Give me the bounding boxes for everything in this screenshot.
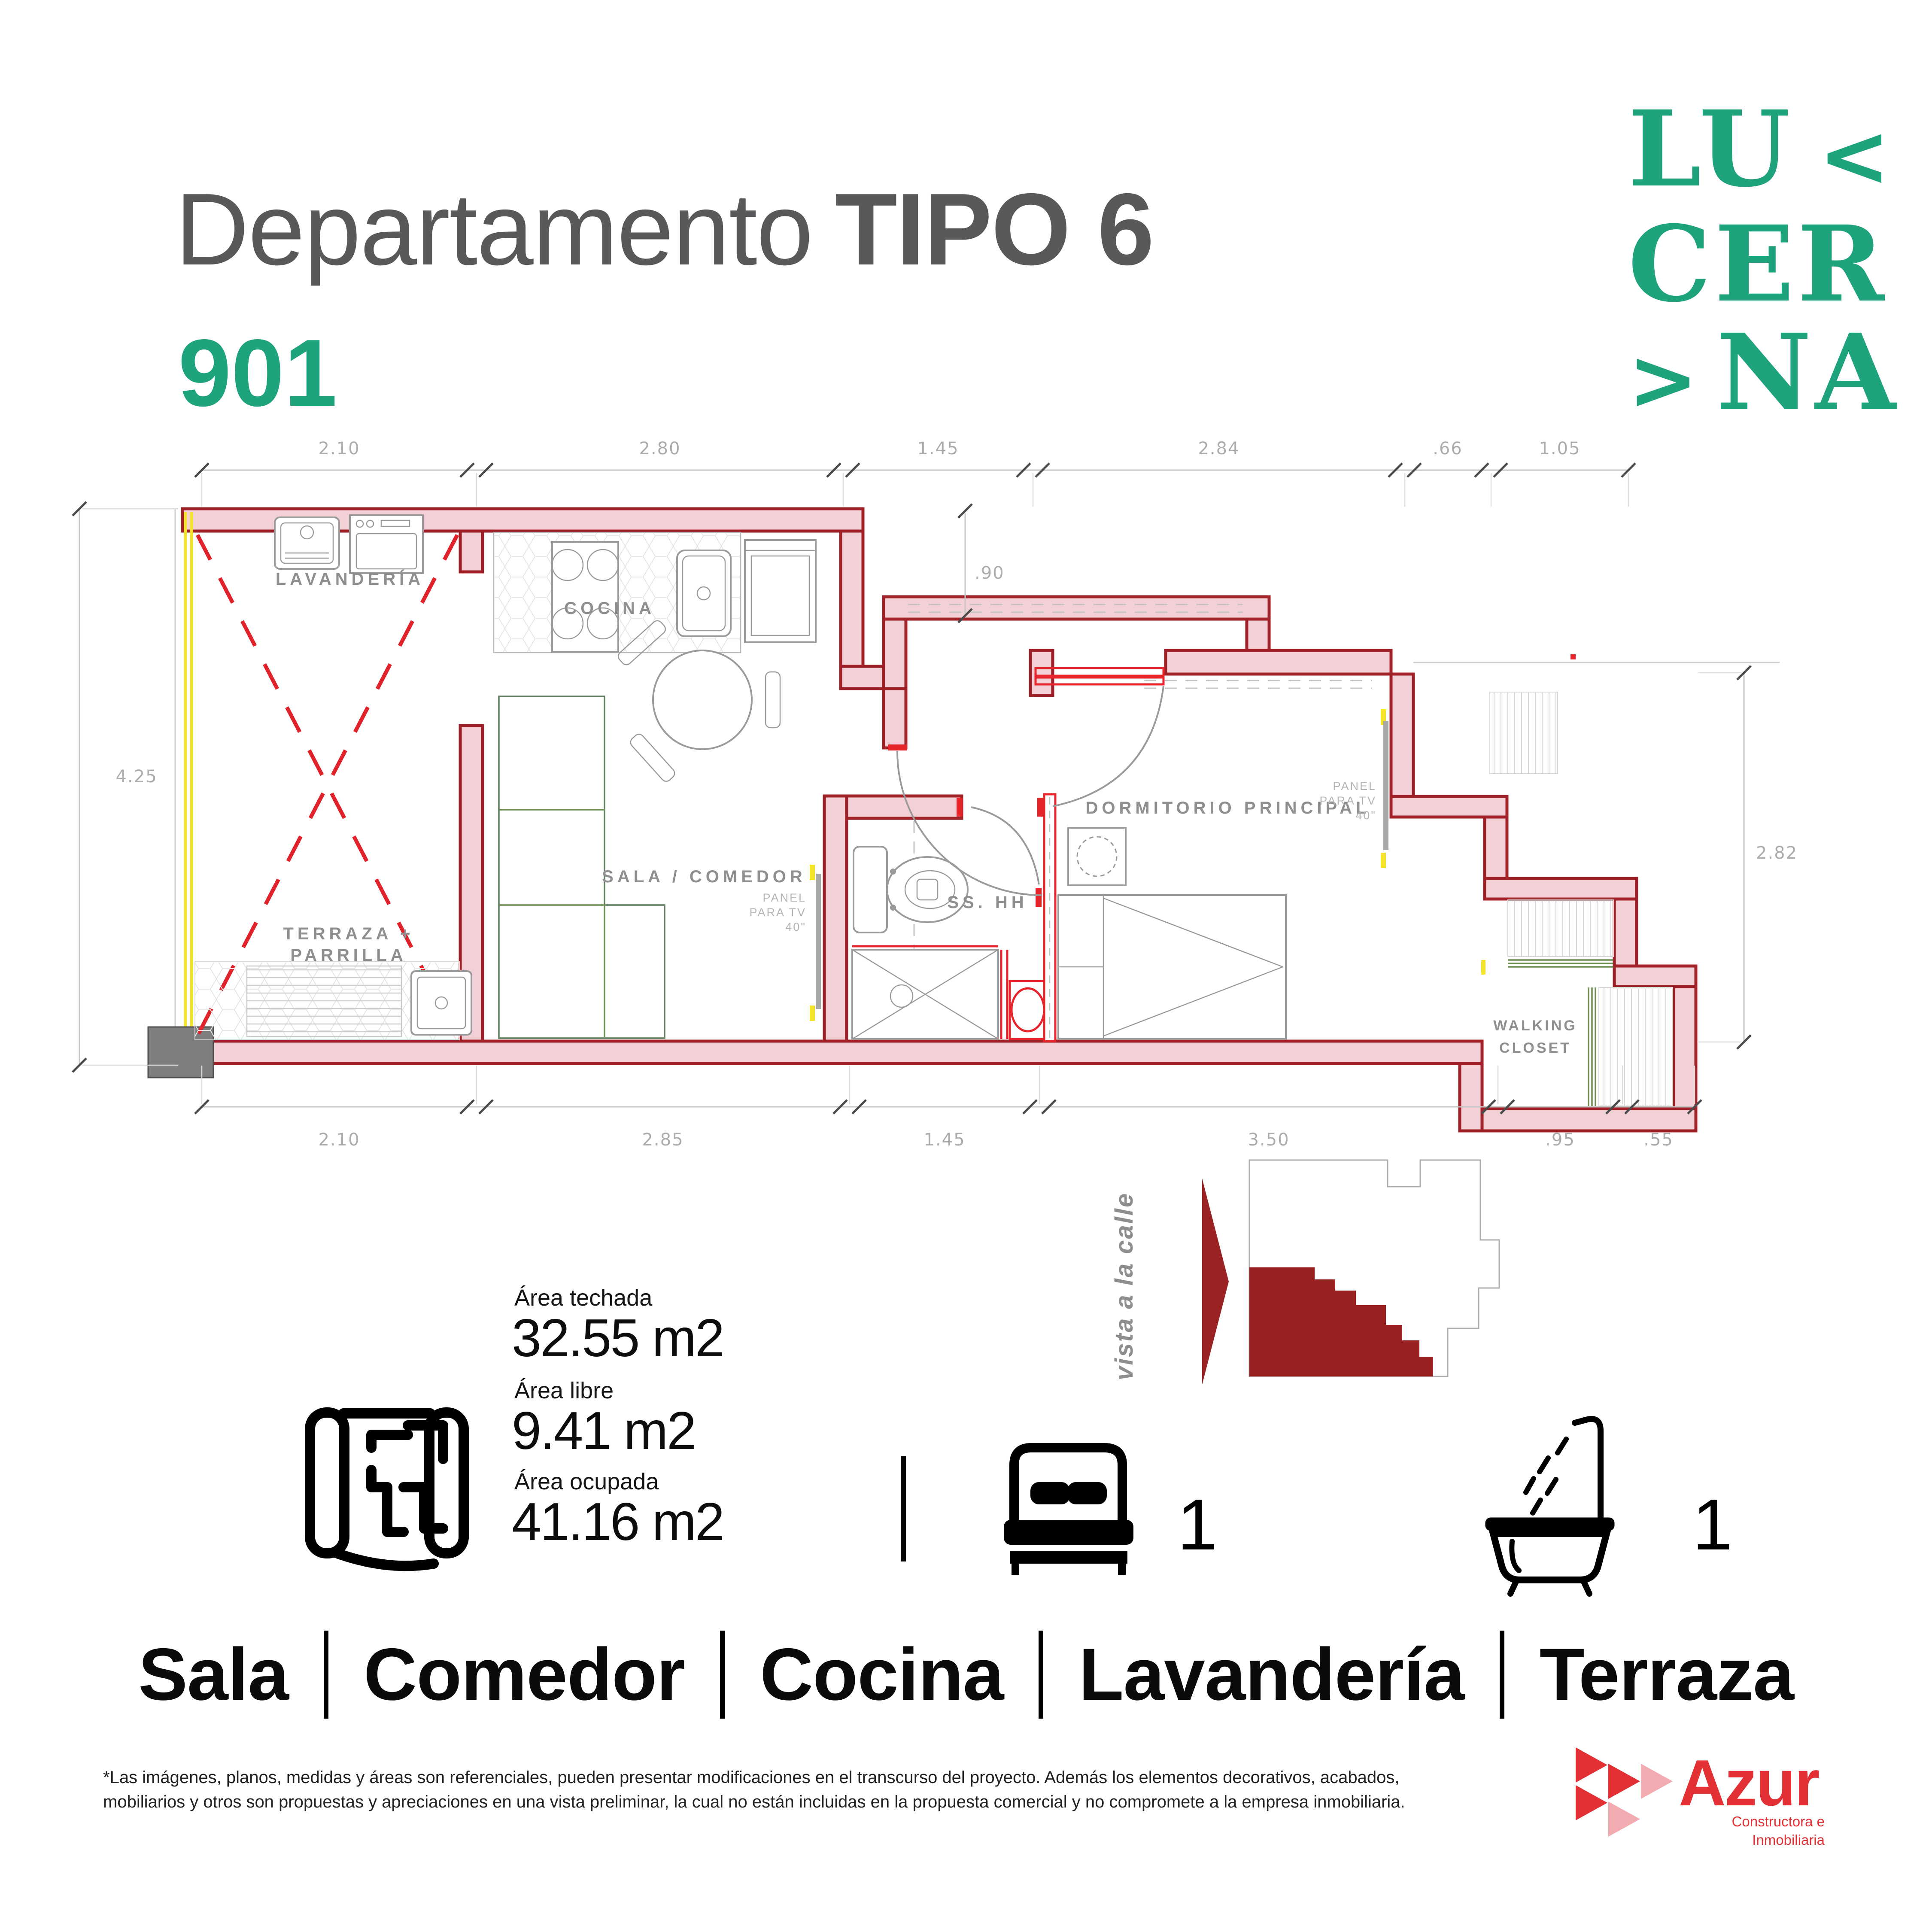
grill-icon [247,966,401,1036]
amenity-sala: Sala [138,1632,289,1717]
bathrooms-count: 1 [1692,1483,1732,1566]
title-regular: Departamento [175,173,812,286]
lucerna-text-lu: LU [1628,88,1793,210]
lucerna-line-1: LU< [1628,95,1899,210]
azur-tagline: Constructora e Inmobiliaria [1679,1813,1825,1850]
svg-text:2.10: 2.10 [318,439,360,459]
amenity-separator [324,1631,328,1719]
area-ocupada-value: 41.16 m2 [512,1492,723,1552]
amenity-separator [1500,1631,1504,1719]
feature-divider [901,1456,906,1561]
amenity-separator [720,1631,725,1719]
svg-text:4.25: 4.25 [115,767,157,787]
svg-text:.95: .95 [1545,1130,1575,1150]
svg-text:1.45: 1.45 [917,439,959,459]
street-view-arrow-icon [1202,1179,1229,1385]
svg-text:2.80: 2.80 [639,439,680,459]
svg-text:2.84: 2.84 [1198,439,1239,459]
kitchen-counter [494,532,816,653]
partition-wall [1044,794,1055,1041]
area-libre-label: Área libre [514,1377,614,1404]
bathroom [852,798,1045,1039]
bedroom [1058,828,1286,1039]
bathtub-icon [1485,1419,1614,1594]
amenities-row: Sala Comedor Cocina Lavandería Terraza [0,1629,1932,1719]
azur-logo: Azur [1679,1746,1819,1821]
tv-panel-sala [810,865,821,1021]
area-libre-value: 9.41 m2 [512,1400,695,1461]
disclaimer: *Las imágenes, planos, medidas y áreas s… [103,1765,1533,1814]
chevron-left-icon: < [1818,106,1890,206]
page-title: DepartamentoTIPO 6 [175,171,1153,288]
azur-triangles-icon [1576,1747,1673,1837]
svg-text:.66: .66 [1433,439,1463,459]
doors [888,654,1576,907]
svg-text:2.85: 2.85 [642,1130,683,1150]
stove-icon [552,542,618,652]
area-techada-label: Área techada [514,1285,652,1311]
area-techada-value: 32.55 m2 [512,1308,723,1369]
lucerna-text-cer: CER [1628,203,1888,325]
fridge-icon [745,540,816,642]
svg-text:1.05: 1.05 [1539,439,1580,459]
svg-text:2.82: 2.82 [1756,843,1798,863]
laundry-sink-icon [275,517,339,569]
bath-vanity-icon [1010,981,1045,1039]
label-tv-dorm-2: PARA TV [1319,794,1376,807]
lucerna-line-3: >NA [1628,319,1899,434]
lucerna-line-2: CER [1628,210,1899,319]
bed-plan-icon [1058,895,1286,1039]
svg-text:1.45: 1.45 [923,1130,965,1150]
svg-text:3.50: 3.50 [1248,1130,1289,1150]
amenity-lavanderia: Lavandería [1078,1632,1464,1717]
lucerna-logo: LU< CER >NA [1628,95,1899,434]
bedrooms-count: 1 [1177,1483,1217,1566]
label-tv-sala-1: PANEL [762,891,806,904]
label-tv-sala-3: 40" [785,920,806,933]
label-tv-sala-2: PARA TV [749,906,806,919]
toilet-icon [854,847,968,933]
street-view-diagram: vista a la calle [1110,1160,1499,1385]
amenity-comedor: Comedor [364,1632,685,1717]
label-wc-2: CLOSET [1499,1040,1571,1056]
bed-icon [1004,1448,1133,1575]
svg-text:2.10: 2.10 [318,1130,360,1150]
shower-icon [852,946,1007,1039]
amenity-separator [1039,1631,1043,1719]
label-tv-dorm-3: 40" [1355,809,1376,822]
amenity-terraza: Terraza [1540,1632,1794,1717]
bbq-sink-icon [411,971,471,1035]
svg-text:.90: .90 [975,563,1005,583]
terrace-zone [148,512,471,1078]
amenity-cocina: Cocina [760,1632,1003,1717]
label-lavanderia: LAVANDERÍA [276,569,424,589]
area-ocupada-label: Área ocupada [514,1468,659,1495]
chevron-right-icon: > [1628,331,1698,428]
washer-unit-icon [1068,828,1126,885]
flyer-page: LAVANDERÍA COCINA SALA / COMEDOR TERRAZA… [0,0,1932,1932]
disclaimer-line-1: *Las imágenes, planos, medidas y áreas s… [103,1765,1533,1790]
svg-text:.55: .55 [1643,1130,1674,1150]
blueprint-icon [310,1413,464,1566]
label-wc-1: WALKING [1493,1018,1577,1034]
kitchen-sink-icon [677,550,731,636]
label-tv-dorm-1: PANEL [1333,780,1376,793]
floor-plan: LAVANDERÍA COCINA SALA / COMEDOR TERRAZA… [73,439,1798,1150]
label-sala-comedor: SALA / COMEDOR [602,867,806,886]
washing-machine-icon [350,515,423,573]
lucerna-text-na: NA [1716,311,1899,434]
azur-tagline-1: Constructora e [1679,1813,1825,1831]
label-terraza-1: TERRAZA + [283,924,414,943]
label-cocina: COCINA [564,599,655,618]
label-bano: SS. HH [947,893,1027,912]
street-view-label: vista a la calle [1110,1192,1138,1380]
azur-tagline-2: Inmobiliaria [1679,1831,1825,1850]
walking-closet [1508,900,1673,1106]
title-type: TIPO 6 [835,173,1154,286]
unit-number: 901 [178,319,337,428]
label-terraza-2: PARRILLA [290,946,407,965]
disclaimer-line-2: mobiliarios y otros son propuestas y apr… [103,1790,1533,1814]
